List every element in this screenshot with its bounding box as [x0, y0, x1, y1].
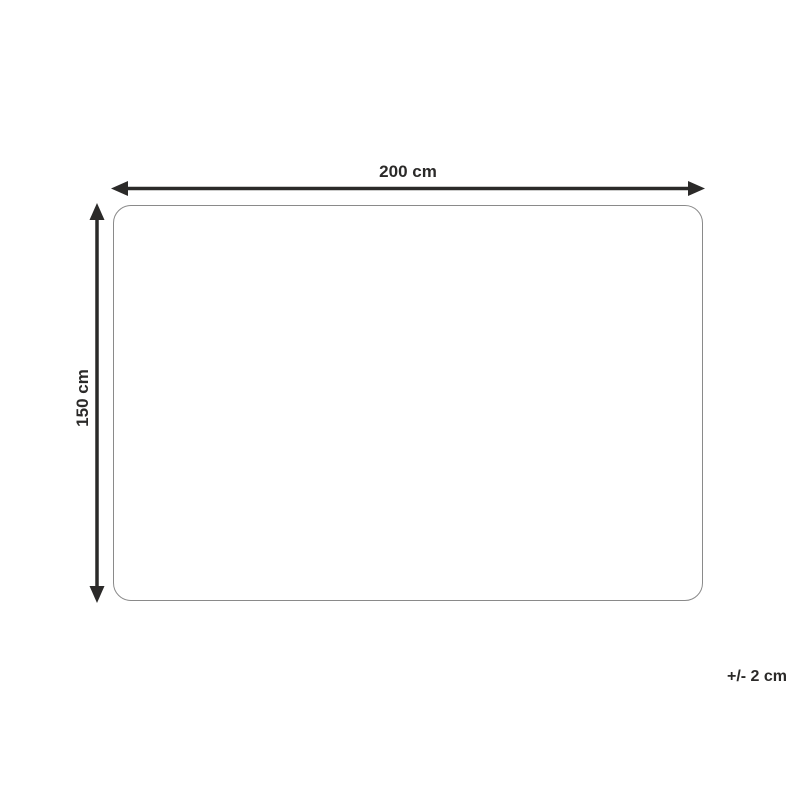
tolerance-note-label: +/- 2 cm — [637, 667, 787, 687]
width-dimension-label: 200 cm — [113, 162, 703, 182]
height-dimension-label: 150 cm — [73, 358, 93, 438]
dimension-diagram: 200 cm 150 cm +/- 2 cm — [0, 0, 800, 800]
width-arrow-icon — [108, 180, 708, 197]
product-outline — [113, 205, 703, 601]
